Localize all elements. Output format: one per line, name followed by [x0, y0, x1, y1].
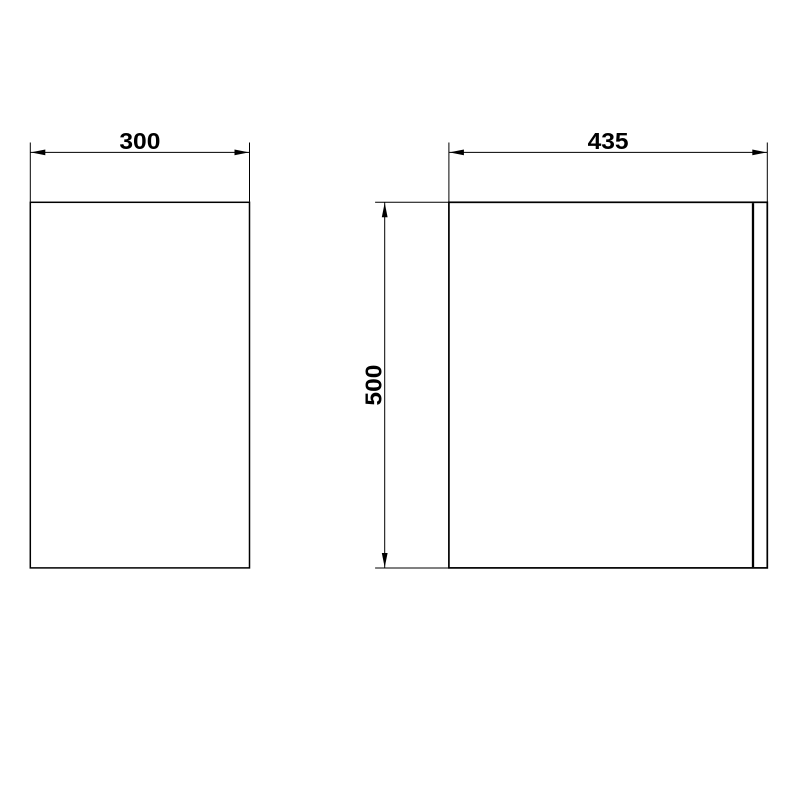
svg-text:500: 500: [360, 365, 386, 406]
svg-text:435: 435: [588, 128, 629, 154]
svg-text:300: 300: [119, 128, 160, 154]
